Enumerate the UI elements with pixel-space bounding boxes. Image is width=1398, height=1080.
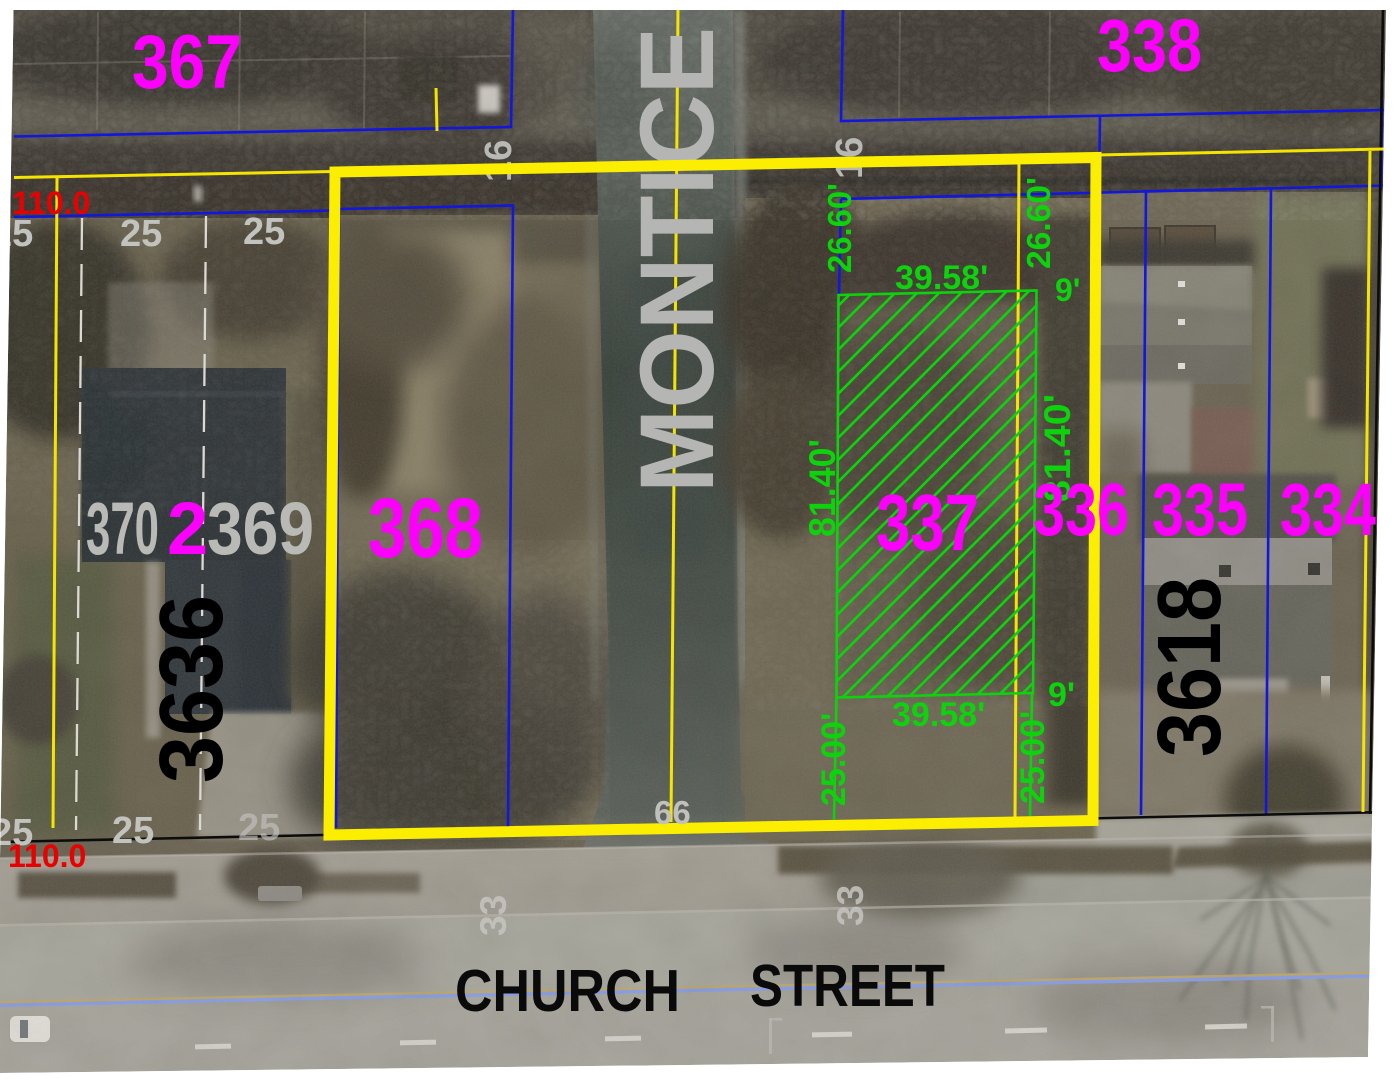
svg-text:25.00': 25.00'	[1014, 711, 1052, 804]
svg-text:110.0: 110.0	[8, 838, 86, 874]
svg-text:370: 370	[86, 487, 159, 570]
svg-text:337: 337	[876, 478, 979, 567]
svg-text:16: 16	[478, 140, 520, 182]
svg-text:336: 336	[1033, 468, 1129, 551]
svg-text:25: 25	[120, 213, 162, 255]
svg-text:335: 335	[1152, 468, 1248, 551]
svg-text:338: 338	[1097, 4, 1202, 87]
svg-text:33: 33	[830, 885, 871, 926]
svg-text:CHURCH: CHURCH	[455, 958, 680, 1024]
svg-text:2: 2	[167, 487, 208, 570]
svg-text:25: 25	[243, 211, 285, 253]
svg-text:25.00': 25.00'	[815, 713, 853, 806]
svg-text:39.58': 39.58'	[892, 696, 985, 734]
svg-text:367: 367	[132, 20, 242, 105]
svg-text:368: 368	[368, 481, 483, 575]
svg-text:3618: 3618	[1140, 577, 1240, 757]
svg-text:33: 33	[473, 895, 514, 936]
svg-text:110.0: 110.0	[12, 185, 90, 221]
svg-text:26.60': 26.60'	[821, 183, 858, 273]
svg-text:81.40': 81.40'	[802, 439, 843, 537]
svg-text:9': 9'	[1048, 676, 1075, 714]
svg-text:25: 25	[238, 807, 280, 849]
svg-text:66: 66	[654, 794, 691, 831]
svg-text:MONTICE: MONTICE	[619, 27, 736, 493]
svg-text:25: 25	[112, 810, 154, 852]
svg-text:334: 334	[1280, 468, 1376, 551]
svg-text:26.60': 26.60'	[1020, 177, 1057, 269]
svg-text:39.58': 39.58'	[895, 259, 988, 297]
svg-text:3636: 3636	[142, 595, 242, 783]
svg-text:9': 9'	[1055, 272, 1080, 308]
svg-text:STREET: STREET	[750, 953, 945, 1019]
svg-text:369: 369	[207, 487, 314, 570]
